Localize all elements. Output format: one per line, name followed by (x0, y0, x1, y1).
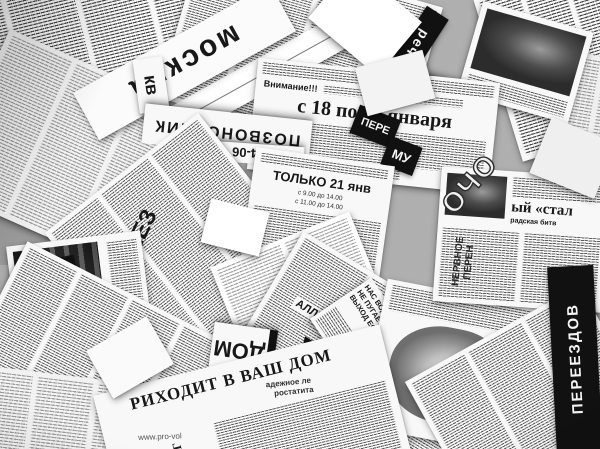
website-url: www.pro-vol (138, 431, 182, 442)
newspaper-collage-photo: речи москва кв ОРГАНИЗАЦИЯ ПЕРЕЕЗДОВ Вни… (0, 0, 600, 449)
pereezdov-strip-headline: ПЕРЕЕЗДОВ (564, 302, 587, 414)
newspaper-scrap: ПЕРЕЕЗДОВ (547, 265, 600, 449)
kv-fragment: кв (139, 74, 163, 97)
roman-byline: Роман Г (169, 441, 194, 449)
